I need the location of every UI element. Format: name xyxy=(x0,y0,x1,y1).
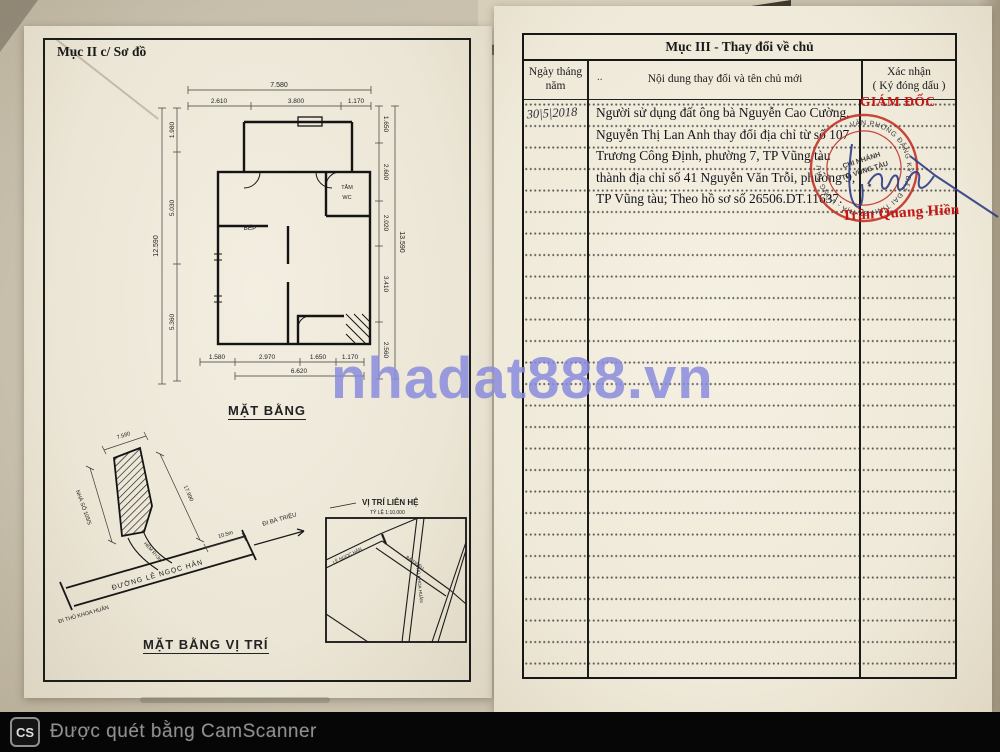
dimension-labels: 7.580 2.610 3.800 1.170 12.590 1.980 5.0… xyxy=(153,82,405,375)
room-labels: BẾP TẮM WC xyxy=(243,183,353,232)
svg-text:TẮM: TẮM xyxy=(341,183,353,191)
approver-title: GIÁM ĐỐC xyxy=(860,94,936,110)
inset-road-labels: LÊ NGỌC HÂN BÀ TRIỆU THỦ KHOA HUÂN xyxy=(331,545,426,603)
svg-text:5.360: 5.360 xyxy=(169,313,176,330)
svg-text:1.650: 1.650 xyxy=(310,354,327,361)
watermark-text: nhadat888.vn xyxy=(331,345,714,412)
svg-text:10.5m: 10.5m xyxy=(218,530,235,540)
svg-text:17.990: 17.990 xyxy=(182,485,194,503)
inset-map-frame xyxy=(326,518,466,642)
svg-text:BẾP: BẾP xyxy=(243,222,256,232)
handwritten-date: 30|5|2018 xyxy=(522,104,583,122)
confirm-label-line2: ( Ký đóng dấu ) xyxy=(873,80,946,92)
svg-text:6.620: 6.620 xyxy=(291,368,308,375)
svg-text:NHÀ SỐ 105/5: NHÀ SỐ 105/5 xyxy=(74,489,93,526)
svg-text:13.590: 13.590 xyxy=(398,231,405,253)
inset-map-title: VỊ TRÍ LIÊN HỆ xyxy=(362,498,419,507)
svg-text:1.580: 1.580 xyxy=(209,354,226,361)
svg-text:2.600: 2.600 xyxy=(382,164,389,181)
content-marker: .. xyxy=(597,71,603,84)
section-title-muc3: Mục III - Thay đổi về chủ xyxy=(524,35,955,61)
land-parcel xyxy=(114,448,152,536)
svg-text:2.610: 2.610 xyxy=(211,98,228,105)
inset-roads xyxy=(326,518,466,642)
site-plan-drawing: ĐƯỜNG LÊ NGỌC HÂN ĐI THỦ KHOA HUÂN ĐI BÀ… xyxy=(48,420,320,632)
site-plan-caption: MẶT BẰNG VỊ TRÍ xyxy=(143,637,269,654)
site-labels: ĐƯỜNG LÊ NGỌC HÂN ĐI THỦ KHOA HUÂN ĐI BÀ… xyxy=(58,431,298,625)
inset-map: VỊ TRÍ LIÊN HỆ TỶ LỆ 1:10.000 LÊ NGỌC HÂ… xyxy=(322,494,472,644)
svg-text:7.580: 7.580 xyxy=(116,431,131,441)
camscanner-logo-icon: CS xyxy=(10,717,40,747)
col-header-content: .. Nội dung thay đổi và tên chủ mới xyxy=(589,61,863,99)
svg-text:5.030: 5.030 xyxy=(169,199,176,216)
house-walls xyxy=(218,117,370,344)
scanned-document: Mục II c/ Sơ đồ xyxy=(0,0,1000,752)
confirm-label-line1: Xác nhận xyxy=(887,66,931,78)
svg-text:1.980: 1.980 xyxy=(169,121,176,138)
svg-text:2.020: 2.020 xyxy=(382,215,389,232)
section-title-muc2: Mục II c/ Sơ đồ xyxy=(57,44,146,60)
svg-text:7.580: 7.580 xyxy=(270,82,288,89)
camscanner-bar: CS Được quét bằng CamScanner xyxy=(0,712,1000,752)
dimension-lines xyxy=(158,86,399,384)
svg-text:2.970: 2.970 xyxy=(259,354,276,361)
scan-smudge xyxy=(140,697,330,703)
signature-ink xyxy=(790,120,1000,250)
floor-plan-caption: MẶT BẰNG xyxy=(228,403,306,420)
svg-text:3.410: 3.410 xyxy=(382,276,389,293)
svg-text:WC: WC xyxy=(342,195,351,201)
col-header-date: Ngày tháng năm xyxy=(524,61,589,99)
svg-text:ĐI THỦ KHOA HUÂN: ĐI THỦ KHOA HUÂN xyxy=(58,604,110,625)
col-header-content-label: Nội dung thay đổi và tên chủ mới xyxy=(648,73,803,87)
svg-text:1.650: 1.650 xyxy=(382,116,389,133)
camscanner-label: Được quét bằng CamScanner xyxy=(50,721,317,743)
svg-text:ĐI BÀ TRIỆU: ĐI BÀ TRIỆU xyxy=(261,510,297,527)
svg-text:3.800: 3.800 xyxy=(288,98,305,105)
inset-map-scale: TỶ LỆ 1:10.000 xyxy=(370,508,405,516)
svg-text:1.170: 1.170 xyxy=(348,98,365,105)
svg-text:12.590: 12.590 xyxy=(153,235,160,257)
